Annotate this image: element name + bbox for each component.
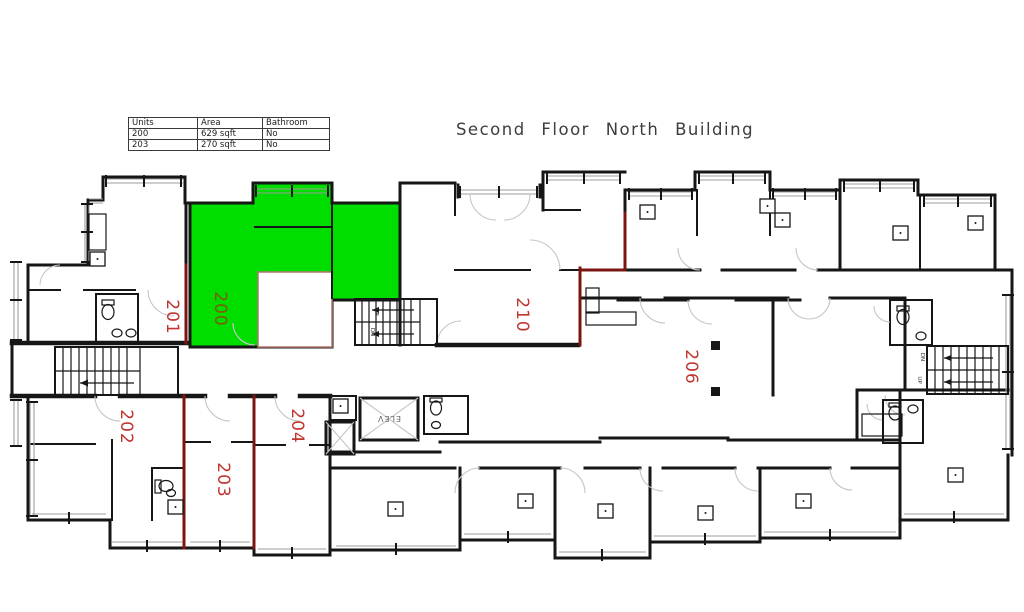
excluded-room-outline: [258, 272, 332, 347]
windows: [11, 173, 1013, 560]
column: [711, 387, 720, 396]
stair-middle: UP DN: [355, 299, 437, 345]
stair-down-label: DN: [369, 328, 375, 336]
walls: [12, 172, 1012, 558]
floor-plan-page: Second Floor North Building Units Area B…: [0, 0, 1024, 612]
unit-label-200: 200: [210, 291, 230, 326]
floor-plan-drawing: UP DN DN UP ELEV JAN: [0, 0, 1024, 612]
column: [711, 341, 720, 350]
unit-label-204: 204: [287, 408, 307, 443]
elevator-label: ELEV: [377, 414, 401, 423]
stair-up-label: UP: [916, 376, 922, 384]
stair-down-label: DN: [919, 353, 925, 361]
unit-label-210: 210: [512, 297, 532, 332]
unit-label-201: 201: [162, 299, 182, 334]
stair-right: DN UP: [916, 346, 1008, 394]
stair-left: [55, 347, 178, 395]
stair-up-label: UP: [373, 308, 379, 316]
unit-label-206: 206: [681, 349, 701, 384]
unit-label-203: 203: [213, 462, 233, 497]
unit-label-202: 202: [116, 409, 136, 444]
